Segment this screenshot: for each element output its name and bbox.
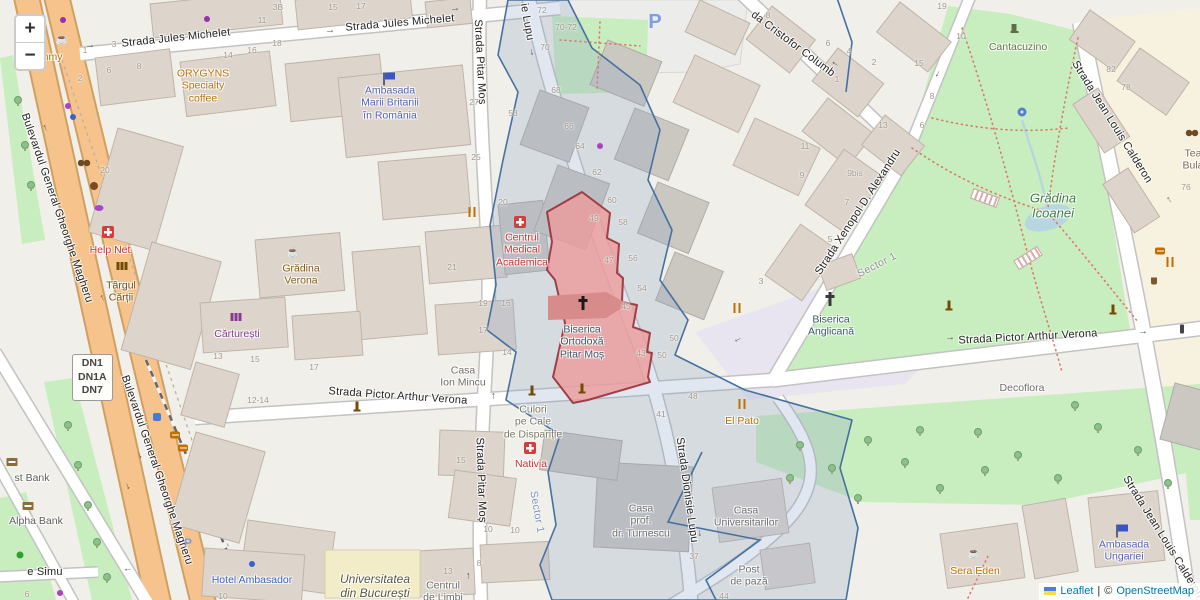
ukraine-flag-icon (1044, 587, 1056, 595)
uk-embassy-building (338, 65, 471, 158)
attribution-copyright: © (1104, 585, 1112, 597)
route-badge-dn: DN1 DN1A DN7 (72, 354, 113, 401)
attribution-bar: Leaflet | © OpenStreetMap (1039, 583, 1200, 600)
route-ref-dn7: DN7 (78, 384, 107, 398)
zoom-control: + − (14, 14, 46, 71)
route-ref-dn1a: DN1A (78, 371, 107, 385)
road-simu (0, 572, 98, 577)
sera-eden-building (940, 523, 1025, 588)
map-base-svg (0, 0, 1200, 600)
hotel-ambasador-building (202, 548, 305, 600)
hungary-embassy-building (1088, 491, 1165, 568)
zoom-in-button[interactable]: + (16, 16, 44, 43)
attribution-separator: | (1097, 585, 1100, 597)
map-canvas[interactable]: Strada Jules MicheletStrada Jules Michel… (0, 0, 1200, 600)
route-ref-dn1: DN1 (78, 357, 107, 371)
university-building (325, 550, 420, 598)
osm-link[interactable]: OpenStreetMap (1116, 585, 1194, 597)
buildings-yellow (325, 550, 420, 598)
leaflet-link[interactable]: Leaflet (1060, 585, 1093, 597)
zoom-out-button[interactable]: − (16, 43, 44, 69)
